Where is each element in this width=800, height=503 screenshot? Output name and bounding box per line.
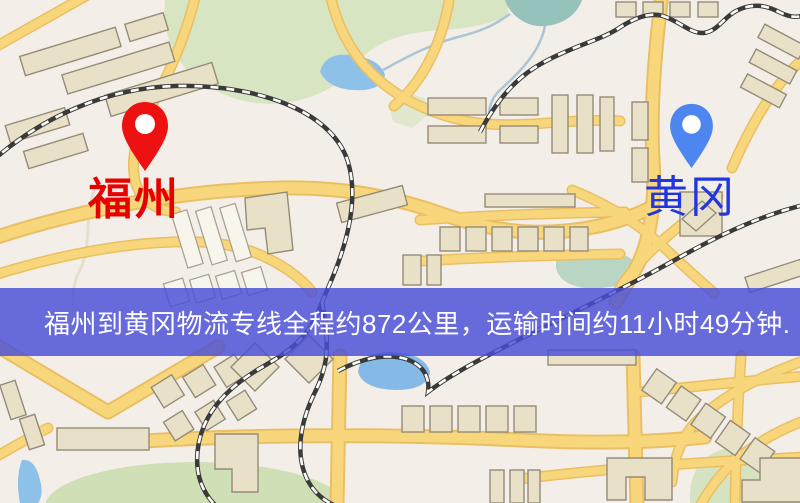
destination-marker[interactable] — [668, 103, 715, 170]
map-background-image — [0, 0, 800, 503]
origin-marker[interactable] — [121, 101, 169, 173]
map-canvas: 福州到黄冈物流专线全程约872公里，运输时间约11小时49分钟. 福州 黄冈 — [0, 0, 800, 503]
route-info-text: 福州到黄冈物流专线全程约872公里，运输时间约11小时49分钟. — [0, 304, 791, 341]
map-pin-icon — [668, 103, 715, 170]
origin-label: 福州 — [88, 178, 180, 222]
map-pin-icon — [121, 101, 169, 173]
destination-label: 黄冈 — [644, 176, 736, 220]
route-info-banner: 福州到黄冈物流专线全程约872公里，运输时间约11小时49分钟. — [0, 288, 800, 356]
